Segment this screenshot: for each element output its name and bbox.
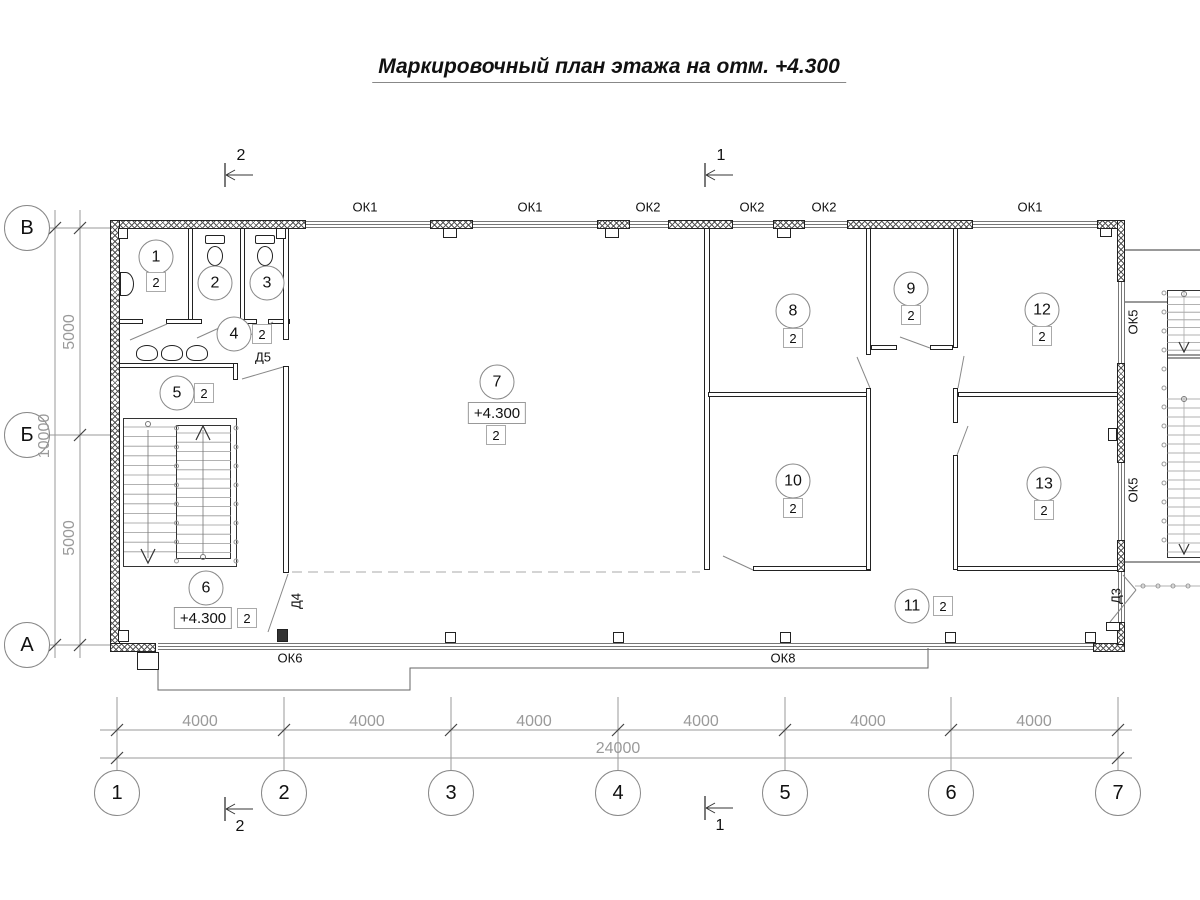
wall-jamb (777, 228, 791, 238)
window-label: ОК1 (518, 200, 543, 215)
partition-wall (115, 363, 235, 368)
axis-circle-column: 4 (595, 770, 641, 816)
stair-inner-flight-box (176, 425, 231, 559)
axis-circle-column: 7 (1095, 770, 1141, 816)
finish-type-badge: 2 (783, 328, 803, 348)
partition-wall (188, 228, 193, 323)
axis-circle-row: В (4, 205, 50, 251)
room-number-circle: 7 (480, 365, 515, 400)
porch-column (137, 652, 159, 670)
axis-circle-column: 5 (762, 770, 808, 816)
door-jamb-d4 (277, 629, 288, 642)
door-label: Д4 (289, 593, 304, 609)
section-mark-label: 1 (716, 817, 725, 835)
partition-wall (958, 392, 1120, 397)
partition-wall (704, 228, 710, 570)
dimension-label: 4000 (516, 713, 552, 731)
finish-type-badge: 2 (1034, 500, 1054, 520)
window-label: ОК1 (1018, 200, 1043, 215)
exterior-wall-bottom-left (110, 643, 156, 652)
axis-circle-row: А (4, 622, 50, 668)
room-number-circle: 3 (250, 266, 285, 301)
partition-wall (866, 388, 871, 570)
window-label: ОК2 (740, 200, 765, 215)
dimension-label: 5000 (61, 314, 79, 350)
partition-wall (953, 455, 958, 570)
dimension-label: 4000 (349, 713, 385, 731)
room-number-circle: 11 (895, 589, 930, 624)
wall-jamb (1108, 428, 1117, 441)
partition-wall (283, 366, 289, 573)
room-number-circle: 1 (139, 240, 174, 275)
toilet-icon (257, 246, 273, 266)
wall-jamb (276, 228, 286, 239)
section-mark-label: 2 (236, 818, 245, 836)
axis-circle-column: 6 (928, 770, 974, 816)
window-band-bottom (158, 646, 1107, 647)
toilet-icon (205, 235, 225, 244)
dimension-label: 5000 (61, 520, 79, 556)
window-label: ОК8 (771, 651, 796, 666)
exterior-wall-right-pier (1117, 363, 1125, 463)
room-number-circle: 12 (1025, 293, 1060, 328)
window-label: ОК6 (278, 651, 303, 666)
window-label: ОК2 (812, 200, 837, 215)
finish-type-badge: 2 (933, 596, 953, 616)
window-mullion (1085, 632, 1096, 643)
exterior-wall-right-pier (1117, 220, 1125, 282)
partition-wall (953, 388, 958, 423)
dimension-label-total: 24000 (596, 740, 641, 758)
urinal-icon (120, 272, 134, 296)
finish-type-badge: 2 (237, 608, 257, 628)
finish-type-badge: 2 (146, 272, 166, 292)
window-label: ОК5 (1126, 478, 1141, 503)
exterior-wall-left (110, 220, 120, 652)
room-number-circle: 4 (217, 317, 252, 352)
finish-type-badge: 2 (783, 498, 803, 518)
partition-wall (871, 345, 897, 350)
axis-circle-column: 3 (428, 770, 474, 816)
door-label: Д5 (255, 350, 271, 365)
section-mark-label: 2 (237, 147, 246, 165)
window-mullion (780, 632, 791, 643)
finish-type-badge: 2 (486, 425, 506, 445)
room-number-circle: 9 (894, 272, 929, 307)
wall-jamb (118, 630, 129, 642)
external-stair-box (1167, 290, 1200, 558)
partition-wall (753, 566, 871, 571)
toilet-icon (255, 235, 275, 244)
finish-type-badge: 2 (901, 305, 921, 325)
exterior-wall-pier (847, 220, 973, 229)
room-number-circle: 6 (189, 571, 224, 606)
dimension-label: 4000 (850, 713, 886, 731)
dimension-label: 4000 (1016, 713, 1052, 731)
exterior-wall-right-pier (1117, 540, 1125, 572)
room-number-circle: 10 (776, 464, 811, 499)
window-label: ОК1 (353, 200, 378, 215)
partition-wall (866, 228, 871, 355)
room-number-circle: 8 (776, 294, 811, 329)
wall-jamb (443, 228, 457, 238)
window-label: ОК5 (1126, 310, 1141, 335)
section-mark-label: 1 (717, 147, 726, 165)
sink-icon (161, 345, 183, 361)
finish-type-badge: 2 (1032, 326, 1052, 346)
dimension-label: 4000 (683, 713, 719, 731)
elevation-badge: +4.300 (174, 607, 232, 629)
finish-type-badge: 2 (252, 324, 272, 344)
exterior-wall-pier (668, 220, 733, 229)
partition-wall (240, 228, 245, 323)
window-label: ОК2 (636, 200, 661, 215)
elevation-badge: +4.300 (468, 402, 526, 424)
door-jamb-wall (233, 363, 238, 380)
dimension-label-total: 10000 (36, 414, 54, 459)
finish-type-badge: 2 (194, 383, 214, 403)
sink-icon (186, 345, 208, 361)
partition-wall (957, 566, 1120, 571)
axis-circle-column: 2 (261, 770, 307, 816)
sink-icon (136, 345, 158, 361)
toilet-icon (207, 246, 223, 266)
wall-jamb (118, 228, 128, 239)
window-mullion (945, 632, 956, 643)
wall-jamb (1100, 228, 1112, 237)
drawing-title: Маркировочный план этажа на отм. +4.300 (372, 55, 846, 83)
room-number-circle: 2 (198, 266, 233, 301)
door-label: Д3 (1109, 588, 1124, 604)
partition-wall (117, 319, 143, 324)
window-mullion (613, 632, 624, 643)
partition-wall (953, 228, 958, 348)
dimension-label: 4000 (182, 713, 218, 731)
wall-jamb (1106, 622, 1120, 631)
room-number-circle: 13 (1027, 467, 1062, 502)
window-mullion (445, 632, 456, 643)
axis-circle-column: 1 (94, 770, 140, 816)
partition-wall (166, 319, 202, 324)
room-number-circle: 5 (160, 376, 195, 411)
partition-wall (930, 345, 953, 350)
window-band-bottom (158, 643, 1107, 644)
partition-wall (708, 392, 868, 397)
floor-plan-drawing: Маркировочный план этажа на отм. +4.300 (0, 0, 1200, 900)
wall-jamb (605, 228, 619, 238)
